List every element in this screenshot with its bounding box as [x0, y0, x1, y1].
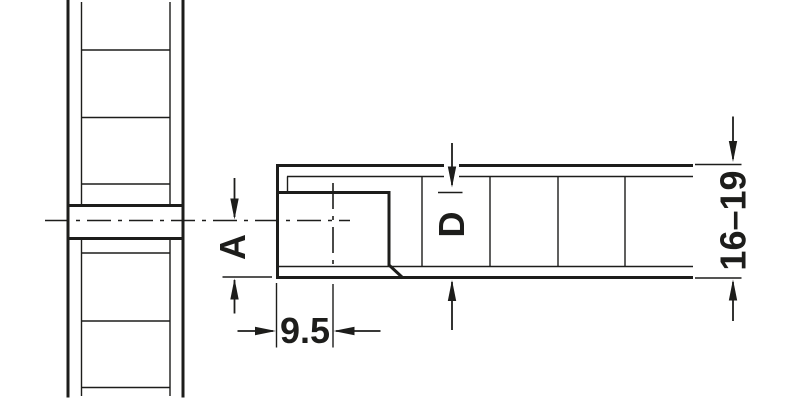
left-panel-section: [67, 0, 185, 398]
arrowhead-down-icon: [448, 167, 456, 188]
dimension-a: A: [212, 178, 272, 314]
dimension-9-5-label: 9.5: [280, 310, 330, 351]
arrowhead-down-icon: [230, 199, 238, 220]
technical-drawing-canvas: A D 9.5 16–19: [0, 0, 800, 400]
arrowhead-left-icon: [334, 327, 355, 335]
dimension-16-19: 16–19: [695, 117, 754, 322]
right-panel-section: [276, 164, 693, 279]
dimension-9-5: 9.5: [238, 283, 381, 351]
dimension-16-19-label: 16–19: [713, 170, 754, 270]
dimension-a-label: A: [212, 234, 253, 260]
arrowhead-right-icon: [255, 327, 276, 335]
arrowhead-up-icon: [448, 280, 456, 301]
fitting-installation-diagram: A D 9.5 16–19: [0, 0, 800, 400]
arrowhead-down-icon: [729, 141, 737, 162]
connector-fitting-outline: [276, 177, 403, 279]
dimension-d: D: [431, 143, 472, 330]
dimension-d-label: D: [431, 212, 472, 238]
arrowhead-up-icon: [230, 279, 238, 300]
arrowhead-up-icon: [729, 280, 737, 301]
